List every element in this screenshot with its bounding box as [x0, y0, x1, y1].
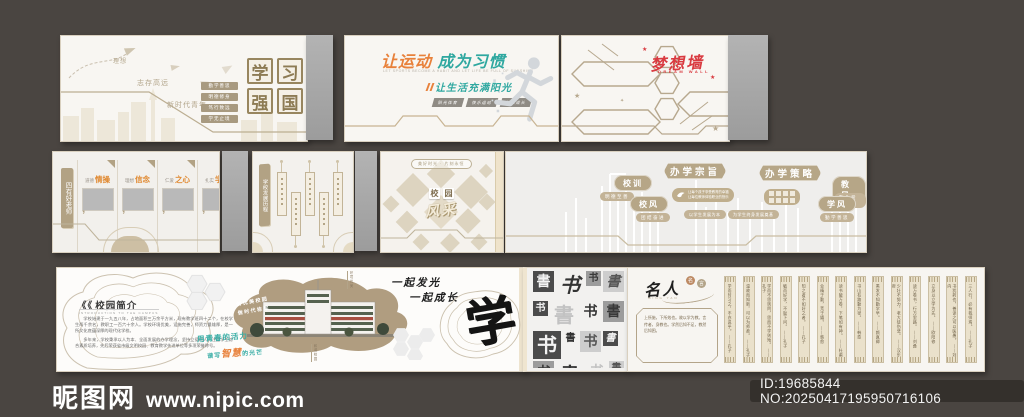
title-char: 学: [247, 58, 273, 84]
study-tags: 勤学善思明德修身笃行致远学无止境: [201, 82, 238, 123]
divider-strip: [728, 35, 768, 140]
panel-books-collage: 書书书書书書书書书書书書书書书書书書: [523, 267, 628, 372]
oval-study-style-tag: 勤学善思: [820, 213, 854, 222]
panel-study-power: 理想 志存高远 新时代青年 勤学善思明德修身笃行致远学无止境 学 习 强 国: [60, 35, 308, 142]
book-char-tile: 书: [580, 301, 601, 322]
title-char: 强: [247, 88, 273, 114]
book-tiles: 書书书書书書书書书書书書书書书書书書: [533, 271, 625, 368]
divider-strip: [222, 151, 248, 251]
book-char-tile: 书: [586, 361, 607, 368]
study-title-grid: 学 习 强 国: [247, 58, 303, 114]
bamboo-slip: 业精于勤，荒于嬉。 ——韩愈: [817, 276, 829, 363]
hexagon-cluster-decor: [391, 326, 435, 360]
title-char: 国: [277, 88, 303, 114]
timeline-slat: [319, 192, 329, 236]
panel-school-strategy: 校训 明德至善 校风 团结奋进 办学宗旨 办学策略 让每个孩子享受教育的幸福让每…: [505, 151, 867, 253]
book-char-tile: 書: [533, 271, 554, 292]
seal-icon: 名: [686, 276, 695, 285]
fold-line-decor: [345, 36, 558, 141]
book-char-tile: 書: [603, 301, 624, 322]
book-char-tile: 书: [556, 271, 584, 299]
divider-strip: [355, 151, 377, 251]
panel-good-teachers: 四有好老师 道德情操 ’ 理想信念 ’: [52, 151, 220, 253]
book-char-tile: 書: [603, 271, 624, 292]
star-icon: ✦: [620, 98, 624, 104]
star-icon: ★: [642, 46, 647, 53]
panel-history: 学校发展历程: [252, 151, 354, 253]
dream-subtitle: DREAM WALL: [658, 69, 710, 74]
book-char-tile: 書: [563, 331, 578, 346]
fold-line-decor: [53, 152, 219, 252]
timeline-stem: [337, 163, 338, 172]
bamboo-slip: 知之者不如好之者。 ——孔子: [798, 276, 810, 363]
timeline-stem: [295, 236, 296, 245]
panel-celebrity-quotes: 名人 名 言 MING YAN 上所施，下所效也。故以学为教。言传者，身教也。学…: [627, 267, 985, 372]
badge-mission: 办学宗旨: [664, 163, 726, 179]
timeline-stem: [323, 236, 324, 245]
book-char-tile: 書: [550, 301, 578, 329]
panel-campus-style: 美好时光 · 片刻永恒 校 园 风采: [380, 151, 504, 253]
star-icon: ★: [710, 74, 715, 81]
intro-heading-en: INTRODUCTION TO THE CAMPUS: [79, 309, 159, 315]
annotation-label: 环境优美: [347, 271, 354, 289]
bamboo-slip: 立身以立学为先。 ——欧阳修: [928, 276, 940, 363]
mission-pill: 让每个孩子享受教育的幸福让每位教师体验职业的快乐: [672, 188, 734, 202]
panel-campus-intro: 《《校园简介 INTRODUCTION TO THE CAMPUS 学校始建于一…: [56, 267, 525, 372]
bamboo-slip: 学而时习之，不亦说乎。 ——孔子: [724, 276, 736, 363]
strategy-pill: 以学生发展为本: [684, 210, 726, 219]
bamboo-slip: 温故而知新，可以为师矣。 ——孔子: [743, 276, 755, 363]
timeline-dot: [322, 245, 325, 248]
oval-school-spirit: 校风: [630, 196, 668, 212]
book-char-tile: 書: [603, 331, 618, 346]
design-preview-image[interactable]: 理想 志存高远 新时代青年 勤学善思明德修身笃行致远学无止境 学 习 强 国 让…: [0, 0, 1024, 417]
book-char-tile: 書: [609, 361, 624, 368]
bamboo-slip: 读书破万卷，下笔如有神。 ——杜甫: [835, 276, 847, 363]
badge-strategy: 办学策略: [759, 165, 821, 181]
book-char-tile: 书: [580, 331, 601, 352]
annotation-label: 和谐校园: [311, 344, 318, 362]
bamboo-slip: 三人行，必有我师焉。 ——孔子: [965, 276, 977, 363]
study-tag: 学无止境: [201, 115, 238, 123]
divider-strip: [306, 35, 333, 140]
book-char-tile: 書: [556, 361, 584, 368]
timeline-slat: [333, 172, 343, 216]
quote-text: 上所施，下所效也。故以学为教。言传者，身教也。学然后知不足，教然后知困。: [637, 309, 717, 362]
timeline-dot: [294, 245, 297, 248]
book-char-tile: 书: [533, 301, 548, 316]
hexagon-cluster-decor: [181, 274, 233, 310]
image-id-badge: ID:19685844 NO:20250417195950716106: [750, 380, 1024, 402]
oval-school-spirit-tag: 团结奋进: [636, 213, 670, 222]
book-char-tile: 书: [533, 331, 561, 359]
timeline-slat: [305, 172, 315, 216]
dove-icon: [676, 191, 685, 199]
star-icon: ★: [712, 124, 719, 133]
label-ideal: 理想: [113, 56, 127, 65]
study-tag: 勤学善思: [201, 82, 238, 90]
strategy-pill: 为学生终身发展奠基: [728, 210, 779, 219]
timeline-stem: [309, 163, 310, 172]
site-url: www.nipic.com: [146, 389, 305, 413]
oval-motto-tag: 明德至善: [600, 192, 634, 201]
bamboo-slip: 黑发不知勤学早。 ——颜真卿: [872, 276, 884, 363]
oval-motto: 校训: [614, 175, 652, 191]
bamboo-slip: 少壮不努力，老大徒伤悲。 ——汉乐府: [891, 276, 903, 363]
bamboo-slip: 书山有路勤为径。 ——韩愈: [854, 276, 866, 363]
bamboo-slips: 学而时习之，不亦说乎。 ——孔子温故而知新，可以为师矣。 ——孔子学而不思则罔，…: [724, 276, 977, 363]
panel-dream-wall: 梦想墙 DREAM WALL ★ ★ ★ ✦ ★: [561, 35, 730, 142]
study-tag: 明德修身: [201, 93, 238, 101]
bamboo-slip: 敏而好学，不耻下问。 ——孔子: [780, 276, 792, 363]
panel-sport-habit: 让运动 成为习惯 LET SPORTS BECOME A HABIT AND L…: [344, 35, 559, 142]
timeline-stem: [281, 163, 282, 172]
squares-pill-decor: [764, 189, 800, 205]
bamboo-slip: 学而不思则罔，思而不学则殆。 ——孔子: [761, 276, 773, 363]
timeline-slat: [291, 192, 301, 236]
timeline-slat: [277, 172, 287, 216]
title-char: 习: [277, 58, 303, 84]
study-tag: 笃行致远: [201, 104, 238, 112]
star-icon: ★: [574, 92, 580, 100]
bamboo-slip: 书犹药也，善读之可以医愚。 ——刘向: [946, 276, 958, 363]
vertical-sign: 学校发展历程: [259, 164, 270, 227]
quote-frame: 上所施，下所效也。故以学为教。言传者，身教也。学然后知不足，教然后知困。: [636, 308, 718, 363]
book-char-tile: 书: [533, 361, 554, 368]
book-char-tile: 书: [586, 271, 601, 286]
oval-study-style: 学风: [818, 196, 856, 212]
site-watermark: 昵图网 www.nipic.com: [52, 378, 305, 415]
label-motto: 志存高远: [137, 78, 169, 88]
site-name: 昵图网: [52, 378, 136, 415]
fold-line-decor: [381, 152, 503, 252]
bamboo-slip: 读万卷书，行万里路。 ——刘彝: [909, 276, 921, 363]
seal-icon: 言: [697, 279, 706, 288]
